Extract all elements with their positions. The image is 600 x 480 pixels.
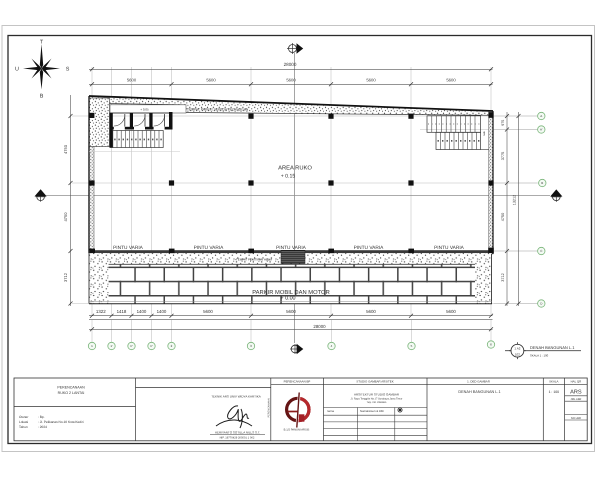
svg-text:Telp. 031 2983665: Telp. 031 2983665 <box>367 401 387 404</box>
svg-text:1. DED GAMBAR: 1. DED GAMBAR <box>467 380 490 384</box>
svg-text:Lokasi: Lokasi <box>19 420 29 424</box>
svg-text:U: U <box>15 66 19 72</box>
svg-text:TEKNIK ARS UNIV WIDYA KARTIKA: TEKNIK ARS UNIV WIDYA KARTIKA <box>211 395 261 399</box>
svg-text:PINTU VARIA: PINTU VARIA <box>434 245 465 251</box>
svg-text:NIP. 19770429 200501 1 002: NIP. 19770429 200501 1 002 <box>220 436 255 439</box>
svg-text:HERIYANTO SOTILLA NILLS S.T.: HERIYANTO SOTILLA NILLS S.T. <box>215 431 261 435</box>
svg-text:NO LBR: NO LBR <box>571 417 581 420</box>
svg-text:ARS: ARS <box>570 389 582 395</box>
svg-text:3712: 3712 <box>63 272 68 282</box>
svg-text:1 A2: 1 A2 <box>514 346 520 350</box>
svg-text:102: 102 <box>515 352 520 356</box>
svg-text:1322: 1322 <box>96 309 106 314</box>
svg-text:5600: 5600 <box>366 309 376 314</box>
svg-text:3712: 3712 <box>501 273 505 281</box>
svg-text:28000: 28000 <box>284 62 297 67</box>
svg-text:1": 1" <box>150 344 153 348</box>
svg-text:5600: 5600 <box>366 77 376 82</box>
svg-text:naik: naik <box>483 131 486 136</box>
svg-text:AREA RUKO: AREA RUKO <box>278 164 312 171</box>
svg-text:1418: 1418 <box>117 309 127 314</box>
svg-text:NamaDosen & Dltn: NamaDosen & Dltn <box>360 409 384 413</box>
svg-text:nama: nama <box>327 409 334 413</box>
svg-text:1 : 100: 1 : 100 <box>549 390 559 394</box>
svg-text:PINTU VARIA: PINTU VARIA <box>354 245 385 251</box>
svg-text:+ 0.00: + 0.00 <box>280 295 295 301</box>
svg-text:5600: 5600 <box>127 77 137 82</box>
svg-text:PERENCANAAN: PERENCANAAN <box>57 385 85 389</box>
svg-text:PERENCANAAN: PERENCANAAN <box>267 398 270 417</box>
svg-text:1400: 1400 <box>157 309 167 314</box>
svg-text:+ 0.05: + 0.05 <box>140 108 149 112</box>
svg-text:B: B <box>40 94 44 100</box>
svg-text:1400: 1400 <box>137 309 147 314</box>
svg-text:SKALA 1 : 100: SKALA 1 : 100 <box>530 353 549 357</box>
svg-text:HAL QR: HAL QR <box>571 380 582 384</box>
svg-text:: 2024: : 2024 <box>38 425 47 429</box>
svg-text:PERENCANAAN BP: PERENCANAAN BP <box>284 380 311 384</box>
svg-text:5600: 5600 <box>203 309 213 314</box>
svg-text:5600: 5600 <box>286 309 296 314</box>
svg-text:DENAH BANGUNAN L.1: DENAH BANGUNAN L.1 <box>458 390 500 394</box>
svg-text:: Jl. Pelikanas No.10 Kota Ked: : Jl. Pelikanas No.10 Kota Kediri <box>38 420 84 424</box>
svg-text:4750: 4750 <box>501 213 505 221</box>
svg-text:4750: 4750 <box>63 212 68 222</box>
svg-text:SKALA: SKALA <box>549 380 558 384</box>
svg-text:5600: 5600 <box>286 77 296 82</box>
svg-text:5600: 5600 <box>206 77 216 82</box>
svg-text:4750: 4750 <box>63 144 68 154</box>
svg-text:+ 0.15: + 0.15 <box>281 173 296 179</box>
svg-text:28000: 28000 <box>313 324 326 329</box>
svg-text:RUKO 2 LANTAI: RUKO 2 LANTAI <box>58 391 85 395</box>
svg-text:975: 975 <box>501 120 505 126</box>
svg-text:Owner: Owner <box>19 415 29 419</box>
svg-text:PINTU VARIA: PINTU VARIA <box>194 245 225 251</box>
svg-text:DENAH BANGUNAN L.1: DENAH BANGUNAN L.1 <box>530 345 575 350</box>
svg-text:JML LBR: JML LBR <box>570 398 581 401</box>
svg-text:A: A <box>540 114 542 118</box>
svg-text:13212: 13212 <box>513 195 517 206</box>
svg-text:5600: 5600 <box>446 309 456 314</box>
svg-text:: Bp.: : Bp. <box>38 415 45 419</box>
svg-text:B: B <box>541 181 543 185</box>
svg-text:PINTU VARIA: PINTU VARIA <box>113 245 144 251</box>
svg-text:A': A' <box>540 128 543 132</box>
svg-text:ARSITEKTUR STUDIO GAMBAR: ARSITEKTUR STUDIO GAMBAR <box>354 392 400 396</box>
svg-text:TEMPAT PENITIPAN HELM: TEMPAT PENITIPAN HELM <box>236 257 273 261</box>
svg-text:S: S <box>66 66 70 72</box>
svg-text:STUDIO GAMBAR ARSITEK: STUDIO GAMBAR ARSITEK <box>356 380 393 384</box>
svg-text:1": 1" <box>130 344 133 348</box>
svg-text:Tahun: Tahun <box>19 425 28 429</box>
svg-text:TEMPAT PARKIR SEPEDA PELANGGAN: TEMPAT PARKIR SEPEDA PELANGGAN <box>187 107 249 111</box>
svg-text:5600: 5600 <box>446 77 456 82</box>
svg-text:B.1/2 PANUNI ARSIS: B.1/2 PANUNI ARSIS <box>284 429 310 432</box>
svg-text:3775: 3775 <box>501 152 505 160</box>
